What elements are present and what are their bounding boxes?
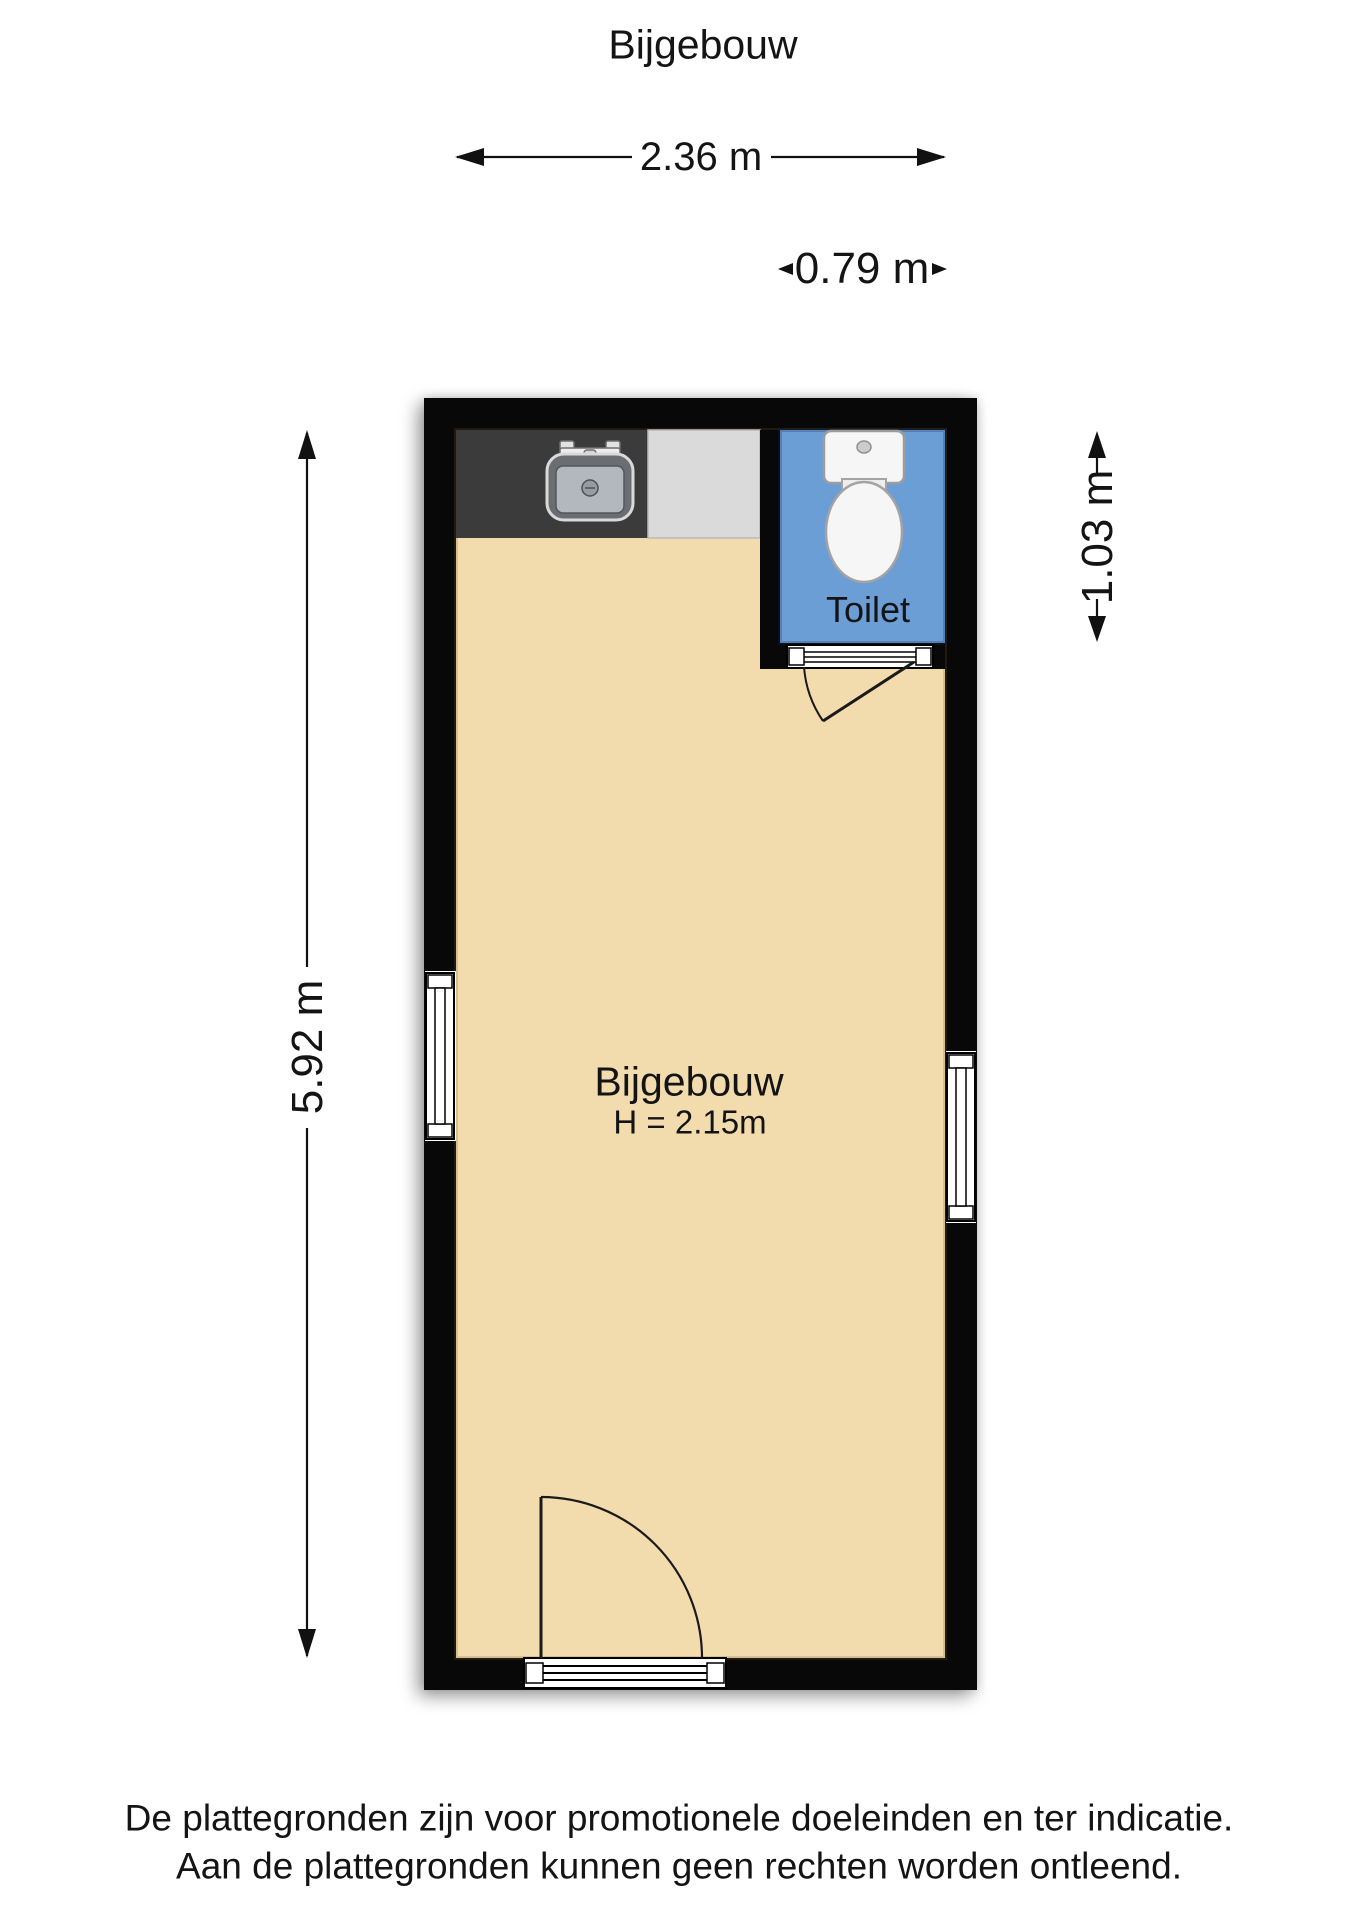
disclaimer-line-2: Aan de plattegronden kunnen geen rechten…	[176, 1848, 1182, 1885]
dimension-width-arrowhead-right	[917, 148, 946, 166]
toilet-partition-wall-left	[760, 430, 780, 669]
left-window-glass	[435, 988, 445, 1124]
right-window-cap-top	[949, 1055, 973, 1068]
toilet-bowl	[826, 482, 902, 582]
dimension-toilet-width-arrowhead-right	[932, 263, 947, 275]
dimension-toilet-height-arrowhead-top	[1088, 431, 1106, 458]
left-window-cap-bottom	[428, 1124, 452, 1137]
toilet-tank	[824, 431, 904, 483]
dimension-width-arrowhead-left	[455, 148, 484, 166]
sink-icon	[547, 441, 633, 520]
dimension-height-label: 5.92 m	[286, 980, 330, 1115]
dimension-toilet-height-arrowhead-bottom	[1088, 616, 1106, 642]
right-window-cap-bottom	[949, 1206, 973, 1219]
entrance-door-jamb-left	[526, 1663, 543, 1683]
left-window	[425, 971, 456, 1141]
dimension-toilet-width-arrowhead-left	[778, 263, 793, 275]
toilet-door-jamb-right	[916, 648, 931, 665]
floorplan-page: Bijgebouw 2.36 m 0.79 m 5.92 m 1.03 m Bi…	[0, 0, 1358, 1920]
floorplan-drawing	[0, 0, 1358, 1920]
toilet-flush-button	[857, 441, 871, 453]
left-window-cap-top	[428, 975, 452, 988]
toilet-icon	[824, 431, 904, 582]
page-title: Bijgebouw	[608, 25, 797, 66]
dimension-height-arrowhead-top	[298, 430, 316, 459]
dimension-toilet-height-label: 1.03 m	[1076, 470, 1120, 605]
right-window-glass	[956, 1068, 966, 1206]
entrance-door-jamb-right	[707, 1663, 724, 1683]
dimension-toilet-width-label: 0.79 m	[795, 247, 930, 291]
main-room-name-label: Bijgebouw	[594, 1062, 783, 1103]
right-window	[946, 1051, 976, 1223]
dimension-width-label: 2.36 m	[640, 137, 762, 177]
disclaimer-line-1: De plattegronden zijn voor promotionele …	[125, 1800, 1234, 1837]
counter-light	[648, 430, 760, 538]
toilet-room-name-label: Toilet	[826, 592, 910, 628]
toilet-door-jamb-left	[789, 648, 804, 665]
main-room-ceiling-height-label: H = 2.15m	[613, 1106, 766, 1139]
dimension-height-arrowhead-bottom	[298, 1629, 316, 1658]
